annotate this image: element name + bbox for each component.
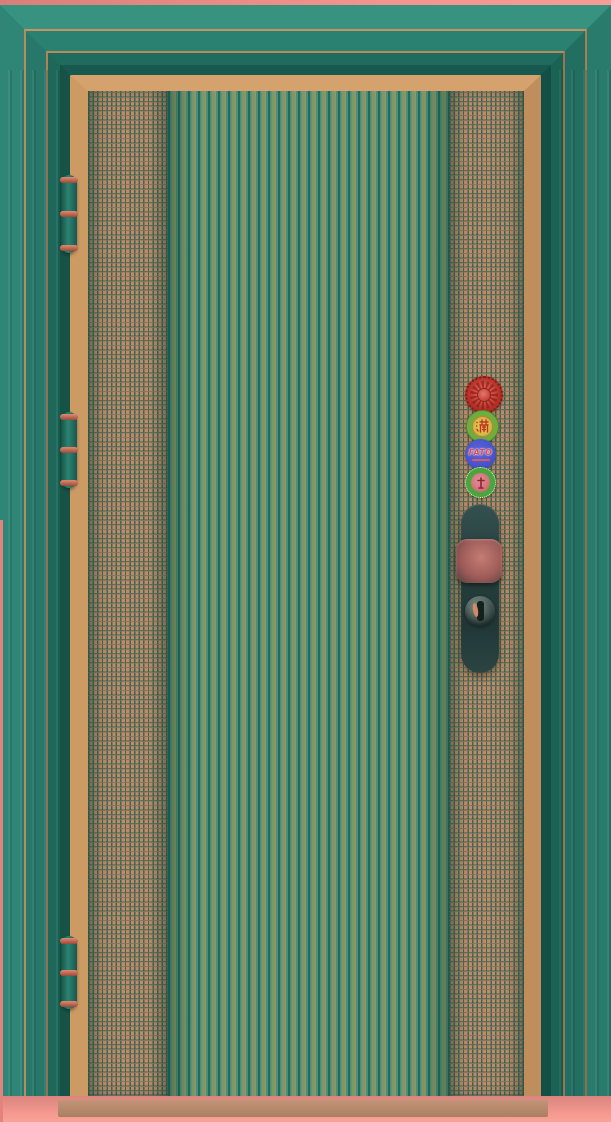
ribbed-center-panel [168, 91, 449, 1096]
hinge-knuckle [60, 938, 78, 944]
green-certification-sticker [465, 467, 496, 498]
hinge-bottom [61, 936, 77, 1009]
hinge-knuckle [60, 447, 78, 453]
hinge-middle [61, 412, 77, 488]
man-character-glyph [475, 419, 490, 434]
fato-logo-sticker: FATO [465, 439, 496, 470]
door-leaf-surface [88, 91, 524, 1096]
red-rosette-seal-sticker [465, 376, 503, 414]
rosette-center [477, 388, 491, 402]
photo-top-edge [0, 0, 611, 5]
fato-subtext-line [472, 459, 490, 461]
handle-backplate [461, 504, 499, 673]
frame-copper-pinstripe-1 [24, 29, 587, 1108]
hinge-knuckle [60, 245, 78, 251]
hinge-knuckle [60, 414, 78, 420]
keyhole-cylinder [465, 596, 495, 626]
certification-center [471, 473, 490, 492]
man-character-seal-sticker [466, 410, 499, 443]
man-seal-center [472, 416, 493, 437]
hinge-knuckle [60, 1001, 78, 1007]
frame-molding-outer [0, 5, 611, 1108]
mesh-panel-left [88, 91, 168, 1096]
door-handle-knob [456, 539, 502, 583]
door-photo: FATO [0, 0, 611, 1122]
door-threshold [58, 1100, 548, 1117]
hinge-knuckle [60, 970, 78, 976]
certification-figure-glyph [475, 476, 487, 490]
hinge-top [61, 175, 77, 253]
hinge-knuckle [60, 177, 78, 183]
photo-left-edge [0, 520, 3, 1122]
hinge-knuckle [60, 480, 78, 486]
hinge-knuckle [60, 211, 78, 217]
fato-logo-text: FATO [469, 449, 493, 457]
